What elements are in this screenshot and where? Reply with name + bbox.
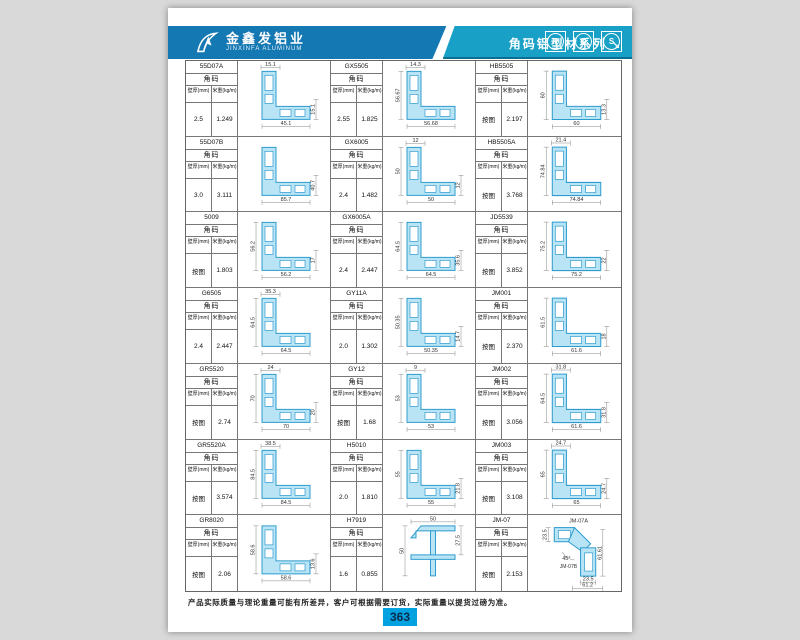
model-number: GR8020 (186, 515, 237, 528)
thickness-value: 2.5 (186, 103, 212, 136)
weight-value: 3.108 (502, 482, 527, 515)
profile-drawing: 31.864.561.631.8 (528, 364, 621, 439)
category-label: 角码 (476, 301, 527, 313)
weight-value: 2.370 (502, 330, 527, 363)
svg-text:58.6: 58.6 (251, 545, 257, 556)
svg-text:75.2: 75.2 (571, 273, 582, 279)
weight-value: 1.810 (357, 482, 382, 515)
weight-header: 米重(kg/m) (357, 162, 382, 178)
profile-cross-section-drawing: 14.356.6756.68 (383, 61, 475, 136)
profile-info-table: GX6005 角码 壁厚(mm) 米重(kg/m) 2.4 1.482 (331, 137, 383, 212)
profile-drawing: 50.3550.3514.7 (383, 288, 475, 363)
thickness-header: 壁厚(mm) (476, 540, 502, 556)
svg-text:9: 9 (414, 365, 417, 371)
profile-cross-section-drawing: 15.145.115.1 (238, 61, 330, 136)
svg-text:64.5: 64.5 (541, 393, 547, 404)
svg-text:60: 60 (573, 121, 579, 127)
profile-cross-section-drawing: 606013.3 (528, 61, 621, 136)
svg-text:75.2: 75.2 (541, 241, 547, 252)
model-number: HB5505 (476, 61, 527, 74)
profile-cell: JM-07 角码 壁厚(mm) 米重(kg/m) 按图 2.153 JM-07A… (476, 515, 621, 591)
weight-value: 2.447 (357, 254, 382, 287)
thickness-header: 壁厚(mm) (186, 540, 212, 556)
profile-cross-section-drawing: 38.584.584.5 (238, 440, 330, 515)
profile-cell: GX5505 角码 壁厚(mm) 米重(kg/m) 2.55 1.825 14.… (331, 61, 476, 137)
svg-text:53: 53 (428, 424, 434, 430)
profile-cross-section-drawing: 555521.8 (383, 440, 475, 515)
profile-drawing: 24707020 (238, 364, 330, 439)
svg-text:55: 55 (396, 471, 402, 477)
cert-r-icon: R (545, 31, 566, 52)
model-number: H5010 (331, 440, 382, 453)
weight-header: 米重(kg/m) (502, 465, 527, 481)
weight-value: 2.06 (212, 557, 237, 591)
category-label: 角码 (476, 528, 527, 540)
svg-text:24.7: 24.7 (601, 483, 607, 494)
profile-cross-section-drawing: 21.474.8474.84 (528, 137, 621, 212)
profile-cross-section-drawing: 64.564.535.6 (383, 212, 475, 287)
thickness-value: 按图 (186, 406, 212, 439)
profile-info-table: JD5539 角码 壁厚(mm) 米重(kg/m) 按图 3.852 (476, 212, 528, 287)
profile-drawing: 58.658.613.6 (238, 515, 330, 591)
svg-text:61.61: 61.61 (597, 546, 603, 560)
svg-text:64.5: 64.5 (396, 241, 402, 252)
thickness-header: 壁厚(mm) (331, 162, 357, 178)
model-number: GY12 (331, 364, 382, 377)
svg-text:85.7: 85.7 (281, 197, 292, 203)
svg-text:64.5: 64.5 (251, 317, 257, 328)
weight-header: 米重(kg/m) (212, 313, 237, 329)
thickness-value: 2.55 (331, 103, 357, 136)
model-number: GX5505 (331, 61, 382, 74)
spec-value-row: 按图 2.153 (476, 557, 527, 591)
spec-header-row: 壁厚(mm) 米重(kg/m) (476, 540, 527, 557)
svg-text:50.35: 50.35 (396, 316, 402, 330)
profile-info-table: HB5505 角码 壁厚(mm) 米重(kg/m) 按图 2.197 (476, 61, 528, 136)
profile-cross-section-drawing: JM-07A45°JM-07B23.561.6123.561.2 (528, 515, 621, 591)
weight-header: 米重(kg/m) (212, 540, 237, 556)
profile-cell: GR5520A 角码 壁厚(mm) 米重(kg/m) 按图 3.574 38.5… (186, 440, 331, 516)
category-label: 角码 (331, 528, 382, 540)
profile-cell: GX6005 角码 壁厚(mm) 米重(kg/m) 2.4 1.482 1250… (331, 137, 476, 213)
svg-text:64.5: 64.5 (426, 272, 437, 278)
weight-value: 3.111 (212, 179, 237, 212)
svg-text:55: 55 (428, 499, 434, 505)
model-number: JM001 (476, 288, 527, 301)
svg-text:15.1: 15.1 (265, 62, 276, 68)
weight-header: 米重(kg/m) (502, 162, 527, 178)
category-label: 角码 (186, 528, 237, 540)
thickness-value: 按图 (476, 254, 502, 287)
category-label: 角码 (186, 301, 237, 313)
category-label: 角码 (331, 301, 382, 313)
thickness-header: 壁厚(mm) (476, 313, 502, 329)
profile-drawing: 14.356.6756.68 (383, 61, 475, 136)
svg-text:58.6: 58.6 (281, 576, 292, 582)
scanned-catalog-background: 金鑫发铝业 JINXINFA ALUMINUM 角码铝型材系列↘ R O S 5… (0, 0, 800, 640)
spec-value-row: 2.5 1.249 (186, 103, 237, 136)
svg-text:56.67: 56.67 (396, 88, 402, 102)
category-label: 角码 (331, 453, 382, 465)
svg-text:12: 12 (456, 182, 462, 188)
profile-info-table: GR5520A 角码 壁厚(mm) 米重(kg/m) 按图 3.574 (186, 440, 238, 515)
profile-info-table: GR8020 角码 壁厚(mm) 米重(kg/m) 按图 2.06 (186, 515, 238, 591)
weight-header: 米重(kg/m) (357, 540, 382, 556)
thickness-header: 壁厚(mm) (186, 237, 212, 253)
weight-value: 3.574 (212, 482, 237, 515)
profile-cell: 55D07A 角码 壁厚(mm) 米重(kg/m) 2.5 1.249 15.1… (186, 61, 331, 137)
profile-cross-section-drawing: 35.364.564.5 (238, 288, 330, 363)
svg-text:60: 60 (541, 92, 547, 98)
svg-text:61.6: 61.6 (571, 424, 582, 430)
model-number: GY11A (331, 288, 382, 301)
spec-value-row: 1.6 0.855 (331, 557, 382, 591)
model-number: JM-07 (476, 515, 527, 528)
svg-text:31.8: 31.8 (555, 364, 566, 370)
profile-info-table: 55D07A 角码 壁厚(mm) 米重(kg/m) 2.5 1.249 (186, 61, 238, 136)
svg-text:27.5: 27.5 (456, 535, 462, 546)
spec-header-row: 壁厚(mm) 米重(kg/m) (331, 162, 382, 179)
weight-value: 1.249 (212, 103, 237, 136)
profile-info-table: GY11A 角码 壁厚(mm) 米重(kg/m) 2.0 1.302 (331, 288, 383, 363)
category-label: 角码 (186, 225, 237, 237)
svg-text:JM-07B: JM-07B (560, 564, 578, 570)
profile-cross-section-drawing: 75.275.222 (528, 212, 621, 287)
cert-o-icon: O (573, 31, 594, 52)
profile-info-table: H5010 角码 壁厚(mm) 米重(kg/m) 2.0 1.810 (331, 440, 383, 515)
profile-cross-section-drawing: 58.658.613.6 (238, 515, 330, 591)
profile-cell: JM002 角码 壁厚(mm) 米重(kg/m) 按图 3.056 31.864… (476, 364, 621, 440)
svg-text:45°: 45° (562, 556, 570, 562)
weight-value: 2.447 (212, 330, 237, 363)
svg-text:70: 70 (283, 424, 289, 430)
profile-cross-section-drawing: 24707020 (238, 364, 330, 439)
thickness-header: 壁厚(mm) (186, 465, 212, 481)
svg-text:24: 24 (267, 365, 273, 371)
thickness-header: 壁厚(mm) (331, 389, 357, 405)
weight-header: 米重(kg/m) (212, 465, 237, 481)
spec-header-row: 壁厚(mm) 米重(kg/m) (476, 237, 527, 254)
model-number: GX6005 (331, 137, 382, 150)
svg-text:84.5: 84.5 (251, 469, 257, 480)
profile-cell: 5009 角码 壁厚(mm) 米重(kg/m) 按图 1.803 56.256.… (186, 212, 331, 288)
svg-text:50: 50 (396, 168, 402, 174)
profile-cross-section-drawing: 61.561.618 (528, 288, 621, 363)
weight-header: 米重(kg/m) (212, 237, 237, 253)
profile-info-table: 5009 角码 壁厚(mm) 米重(kg/m) 按图 1.803 (186, 212, 238, 287)
category-label: 角码 (186, 74, 237, 86)
svg-text:56.2: 56.2 (281, 272, 292, 278)
svg-text:61.2: 61.2 (582, 583, 593, 589)
weight-value: 1.825 (357, 103, 382, 136)
thickness-header: 壁厚(mm) (331, 86, 357, 102)
thickness-header: 壁厚(mm) (476, 162, 502, 178)
thickness-value: 按图 (186, 254, 212, 287)
model-number: GR5520 (186, 364, 237, 377)
category-label: 角码 (476, 453, 527, 465)
svg-text:31.8: 31.8 (601, 407, 607, 418)
spec-value-row: 按图 2.74 (186, 406, 237, 439)
spec-value-row: 2.0 1.810 (331, 482, 382, 515)
thickness-header: 壁厚(mm) (476, 86, 502, 102)
model-number: GX6005A (331, 212, 382, 225)
category-label: 角码 (186, 453, 237, 465)
spec-value-row: 2.4 1.482 (331, 179, 382, 212)
spec-value-row: 按图 2.370 (476, 330, 527, 363)
thickness-header: 壁厚(mm) (186, 389, 212, 405)
spec-value-row: 按图 3.108 (476, 482, 527, 515)
thickness-header: 壁厚(mm) (331, 313, 357, 329)
spec-value-row: 按图 3.574 (186, 482, 237, 515)
profile-info-table: 55D07B 角码 壁厚(mm) 米重(kg/m) 3.0 3.111 (186, 137, 238, 212)
category-label: 角码 (476, 377, 527, 389)
spec-value-row: 按图 3.768 (476, 179, 527, 212)
category-label: 角码 (476, 225, 527, 237)
weight-value: 1.803 (212, 254, 237, 287)
profile-drawing: 95353 (383, 364, 475, 439)
category-label: 角码 (331, 377, 382, 389)
spec-header-row: 壁厚(mm) 米重(kg/m) (186, 540, 237, 557)
profile-cell: HB5505 角码 壁厚(mm) 米重(kg/m) 按图 2.197 60601… (476, 61, 621, 137)
thickness-value: 2.0 (331, 482, 357, 515)
svg-text:56.2: 56.2 (251, 241, 257, 252)
svg-text:74.84: 74.84 (541, 164, 547, 178)
profile-drawing: JM-07A45°JM-07B23.561.6123.561.2 (528, 515, 621, 591)
category-label: 角码 (476, 74, 527, 86)
svg-text:22: 22 (601, 258, 607, 264)
spec-value-row: 按图 2.06 (186, 557, 237, 591)
profile-cell: H7919 角码 壁厚(mm) 米重(kg/m) 1.6 0.855 50502… (331, 515, 476, 591)
thickness-header: 壁厚(mm) (186, 313, 212, 329)
spec-value-row: 按图 3.056 (476, 406, 527, 439)
weight-header: 米重(kg/m) (502, 237, 527, 253)
profile-cell: GR5520 角码 壁厚(mm) 米重(kg/m) 按图 2.74 247070… (186, 364, 331, 440)
model-number: G6505 (186, 288, 237, 301)
category-label: 角码 (186, 150, 237, 162)
thickness-value: 3.0 (186, 179, 212, 212)
profile-cell: GY12 角码 壁厚(mm) 米重(kg/m) 按图 1.68 95353 (331, 364, 476, 440)
thickness-value: 2.4 (186, 330, 212, 363)
thickness-value: 按图 (476, 103, 502, 136)
weight-value: 2.74 (212, 406, 237, 439)
profile-drawing: 555521.8 (383, 440, 475, 515)
thickness-value: 按图 (476, 406, 502, 439)
svg-text:50: 50 (430, 517, 436, 523)
weight-value: 1.302 (357, 330, 382, 363)
spec-header-row: 壁厚(mm) 米重(kg/m) (331, 86, 382, 103)
model-number: JM002 (476, 364, 527, 377)
model-number: JD5539 (476, 212, 527, 225)
weight-header: 米重(kg/m) (502, 313, 527, 329)
profile-cell: JD5539 角码 壁厚(mm) 米重(kg/m) 按图 3.852 75.27… (476, 212, 621, 288)
profile-cross-section-drawing: 31.864.561.631.8 (528, 364, 621, 439)
profile-info-table: JM-07 角码 壁厚(mm) 米重(kg/m) 按图 2.153 (476, 515, 528, 591)
brand-name-en: JINXINFA ALUMINUM (226, 45, 306, 53)
weight-value: 2.197 (502, 103, 527, 136)
svg-text:50.35: 50.35 (424, 348, 438, 354)
weight-value: 3.852 (502, 254, 527, 287)
svg-text:61.5: 61.5 (541, 317, 547, 328)
weight-value: 1.68 (357, 406, 382, 439)
svg-text:50: 50 (400, 548, 406, 554)
model-number: GR5520A (186, 440, 237, 453)
svg-text:21.8: 21.8 (456, 483, 462, 494)
thickness-value: 按图 (476, 557, 502, 591)
weight-value: 2.153 (502, 557, 527, 591)
model-number: JM003 (476, 440, 527, 453)
category-label: 角码 (331, 74, 382, 86)
spec-value-row: 2.4 2.447 (186, 330, 237, 363)
svg-text:13.3: 13.3 (601, 104, 607, 115)
profile-cross-section-drawing: 85.740.7 (238, 137, 330, 212)
weight-value: 3.768 (502, 179, 527, 212)
spec-header-row: 壁厚(mm) 米重(kg/m) (186, 389, 237, 406)
weight-header: 米重(kg/m) (502, 540, 527, 556)
profile-drawing: 15.145.115.1 (238, 61, 330, 136)
thickness-value: 按图 (476, 330, 502, 363)
profile-info-table: G6505 角码 壁厚(mm) 米重(kg/m) 2.4 2.447 (186, 288, 238, 363)
thickness-value: 按图 (476, 179, 502, 212)
thickness-value: 1.6 (331, 557, 357, 591)
profile-cell: JM001 角码 壁厚(mm) 米重(kg/m) 按图 2.370 61.561… (476, 288, 621, 364)
profile-drawing: 12505012 (383, 137, 475, 212)
profile-drawing: 606013.3 (528, 61, 621, 136)
thickness-header: 壁厚(mm) (476, 465, 502, 481)
model-number: 55D07B (186, 137, 237, 150)
spec-header-row: 壁厚(mm) 米重(kg/m) (186, 465, 237, 482)
svg-text:15.1: 15.1 (311, 104, 317, 115)
profile-cell: JM003 角码 壁厚(mm) 米重(kg/m) 按图 3.108 24.765… (476, 440, 621, 516)
svg-text:21.4: 21.4 (555, 137, 566, 143)
spec-value-row: 按图 1.68 (331, 406, 382, 439)
brand-name-cn: 金鑫发铝业 (226, 32, 306, 45)
spec-value-row: 2.0 1.302 (331, 330, 382, 363)
profile-info-table: H7919 角码 壁厚(mm) 米重(kg/m) 1.6 0.855 (331, 515, 383, 591)
profile-drawing: 35.364.564.5 (238, 288, 330, 363)
svg-text:38.5: 38.5 (265, 440, 276, 446)
catalog-page: 金鑫发铝业 JINXINFA ALUMINUM 角码铝型材系列↘ R O S 5… (168, 8, 632, 632)
svg-text:24.7: 24.7 (555, 440, 566, 446)
svg-text:56.68: 56.68 (424, 121, 438, 127)
profile-cross-section-drawing: 50.3550.3514.7 (383, 288, 475, 363)
profile-info-table: GX5505 角码 壁厚(mm) 米重(kg/m) 2.55 1.825 (331, 61, 383, 136)
profile-cell: H5010 角码 壁厚(mm) 米重(kg/m) 2.0 1.810 55552… (331, 440, 476, 516)
svg-text:12: 12 (412, 138, 418, 144)
spec-header-row: 壁厚(mm) 米重(kg/m) (186, 162, 237, 179)
spec-header-row: 壁厚(mm) 米重(kg/m) (476, 162, 527, 179)
profile-drawing: 61.561.618 (528, 288, 621, 363)
svg-text:13.6: 13.6 (311, 559, 317, 570)
profile-cross-section-drawing: 24.7656524.7 (528, 440, 621, 515)
header-brand-area: 金鑫发铝业 JINXINFA ALUMINUM (168, 26, 446, 59)
svg-text:74.84: 74.84 (570, 197, 584, 203)
svg-text:18: 18 (601, 334, 607, 340)
svg-text:20: 20 (311, 409, 317, 415)
profile-cell: 55D07B 角码 壁厚(mm) 米重(kg/m) 3.0 3.111 85.7… (186, 137, 331, 213)
category-label: 角码 (331, 150, 382, 162)
brand-logo-icon (194, 30, 220, 56)
profile-cross-section-drawing: 56.256.217 (238, 212, 330, 287)
spec-header-row: 壁厚(mm) 米重(kg/m) (331, 540, 382, 557)
profile-drawing: 64.564.535.6 (383, 212, 475, 287)
svg-text:84.5: 84.5 (281, 499, 292, 505)
thickness-value: 按图 (186, 482, 212, 515)
page-number-badge: 363 (383, 608, 417, 626)
spec-header-row: 壁厚(mm) 米重(kg/m) (186, 313, 237, 330)
profile-drawing: 38.584.584.5 (238, 440, 330, 515)
thickness-header: 壁厚(mm) (331, 540, 357, 556)
svg-text:50: 50 (428, 197, 434, 203)
profile-cross-section-drawing: 505027.5 (383, 515, 475, 591)
weight-header: 米重(kg/m) (357, 465, 382, 481)
profile-drawing: 56.256.217 (238, 212, 330, 287)
weight-value: 0.855 (357, 557, 382, 591)
cert-s-icon: S (601, 31, 622, 52)
thickness-header: 壁厚(mm) (331, 465, 357, 481)
profile-drawing: 24.7656524.7 (528, 440, 621, 515)
svg-text:64.5: 64.5 (281, 348, 292, 354)
svg-text:JM-07A: JM-07A (569, 519, 588, 525)
spec-value-row: 按图 3.852 (476, 254, 527, 287)
thickness-header: 壁厚(mm) (476, 389, 502, 405)
certification-icons: R O S (545, 31, 622, 52)
spec-header-row: 壁厚(mm) 米重(kg/m) (331, 389, 382, 406)
brand-text: 金鑫发铝业 JINXINFA ALUMINUM (226, 32, 306, 53)
spec-header-row: 壁厚(mm) 米重(kg/m) (331, 313, 382, 330)
thickness-value: 按图 (331, 406, 357, 439)
profile-drawing: 21.474.8474.84 (528, 137, 621, 212)
svg-text:65: 65 (573, 500, 579, 506)
weight-value: 3.056 (502, 406, 527, 439)
page-header: 金鑫发铝业 JINXINFA ALUMINUM 角码铝型材系列↘ R O S (168, 26, 632, 59)
weight-value: 1.482 (357, 179, 382, 212)
svg-text:40.7: 40.7 (311, 180, 317, 191)
thickness-value: 2.4 (331, 254, 357, 287)
profile-cell: GY11A 角码 壁厚(mm) 米重(kg/m) 2.0 1.302 50.35… (331, 288, 476, 364)
thickness-value: 2.4 (331, 179, 357, 212)
profile-grid: 55D07A 角码 壁厚(mm) 米重(kg/m) 2.5 1.249 15.1… (185, 60, 622, 592)
svg-text:61.6: 61.6 (571, 348, 582, 354)
spec-header-row: 壁厚(mm) 米重(kg/m) (476, 86, 527, 103)
model-number: H7919 (331, 515, 382, 528)
weight-header: 米重(kg/m) (212, 86, 237, 102)
category-label: 角码 (331, 225, 382, 237)
svg-text:35.3: 35.3 (265, 289, 276, 295)
profile-info-table: HB5505A 角码 壁厚(mm) 米重(kg/m) 按图 3.768 (476, 137, 528, 212)
profile-drawing: 505027.5 (383, 515, 475, 591)
weight-header: 米重(kg/m) (357, 313, 382, 329)
thickness-header: 壁厚(mm) (186, 162, 212, 178)
category-label: 角码 (186, 377, 237, 389)
weight-header: 米重(kg/m) (502, 389, 527, 405)
thickness-value: 2.0 (331, 330, 357, 363)
thickness-header: 壁厚(mm) (186, 86, 212, 102)
svg-text:70: 70 (251, 395, 257, 401)
profile-cell: HB5505A 角码 壁厚(mm) 米重(kg/m) 按图 3.768 21.4… (476, 137, 621, 213)
profile-info-table: JM001 角码 壁厚(mm) 米重(kg/m) 按图 2.370 (476, 288, 528, 363)
spec-header-row: 壁厚(mm) 米重(kg/m) (331, 465, 382, 482)
spec-header-row: 壁厚(mm) 米重(kg/m) (186, 86, 237, 103)
spec-header-row: 壁厚(mm) 米重(kg/m) (476, 465, 527, 482)
category-label: 角码 (476, 150, 527, 162)
weight-header: 米重(kg/m) (357, 86, 382, 102)
svg-text:14.7: 14.7 (456, 331, 462, 342)
svg-text:17: 17 (311, 258, 317, 264)
spec-value-row: 按图 1.803 (186, 254, 237, 287)
header-title-area: 角码铝型材系列↘ R O S (443, 26, 632, 59)
profile-cell: G6505 角码 壁厚(mm) 米重(kg/m) 2.4 2.447 35.36… (186, 288, 331, 364)
spec-header-row: 壁厚(mm) 米重(kg/m) (331, 237, 382, 254)
